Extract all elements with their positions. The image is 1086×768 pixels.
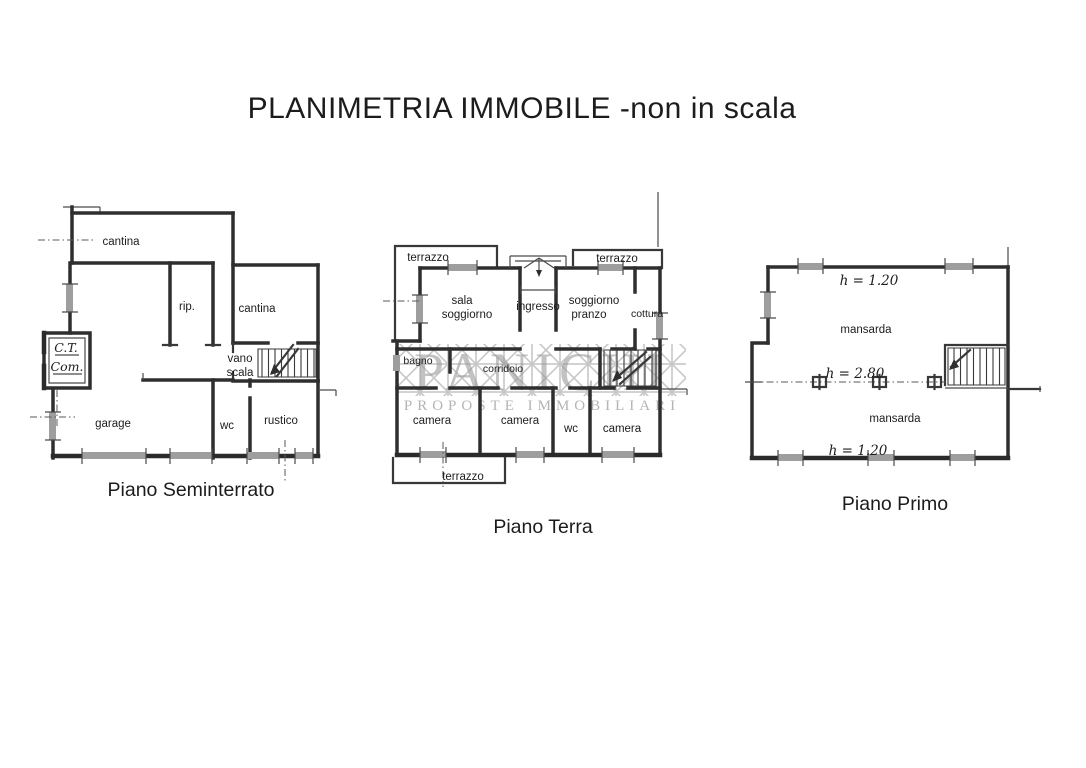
room-label-soggiorno-pranzo1: soggiorno: [569, 295, 620, 307]
room-label-camera2: camera: [501, 415, 540, 427]
room-label-cottura: cottura: [631, 308, 663, 320]
terra-walls: [393, 192, 687, 483]
room-label-wc-terra: wc: [563, 423, 578, 435]
room-label-cantina-top: cantina: [102, 236, 140, 248]
room-label-wc-seminterrato: wc: [219, 420, 234, 432]
room-label-scala: scala: [227, 367, 254, 379]
floor-label-terra: Piano Terra: [493, 516, 593, 538]
room-label-camera1: camera: [413, 415, 452, 427]
height-label-bottom: h = 1.20: [829, 443, 888, 459]
room-label-terrazzo-left: terrazzo: [407, 252, 449, 264]
room-label-corridoio: corridoio: [483, 363, 523, 375]
room-label-mansarda-top: mansarda: [840, 324, 892, 336]
room-label-camera3: camera: [603, 423, 642, 435]
room-label-cantina-right: cantina: [238, 303, 276, 315]
room-label-vano: vano: [228, 353, 253, 365]
primo-stairs: [945, 345, 1008, 388]
plan-seminterrato: cantina rip. cantina C.T. Com. vano scal…: [30, 207, 336, 501]
room-label-terrazzo-bottom: terrazzo: [442, 471, 484, 483]
floorplan-drawing: PANICHI PROPOSTE IMMOBILIARI PLANIMETRIA…: [0, 0, 1086, 768]
floor-label-primo: Piano Primo: [842, 493, 948, 515]
room-label-rip: rip.: [179, 301, 195, 313]
room-label-ct: C.T.: [54, 340, 78, 355]
watermark: PANICHI PROPOSTE IMMOBILIARI: [398, 342, 686, 414]
room-label-bagno: bagno: [403, 355, 432, 367]
room-label-terrazzo-right: terrazzo: [596, 253, 638, 265]
watermark-tagline: PROPOSTE IMMOBILIARI: [404, 398, 680, 414]
room-label-ingresso: ingresso: [516, 301, 559, 313]
room-label-sala: sala: [451, 295, 473, 307]
room-label-sala-soggiorno: soggiorno: [442, 309, 493, 321]
height-label-middle: h = 2.80: [826, 366, 885, 382]
height-label-top: h = 1.20: [840, 273, 899, 289]
floorplan-page: PANICHI PROPOSTE IMMOBILIARI PLANIMETRIA…: [0, 0, 1086, 768]
room-label-mansarda-bottom: mansarda: [869, 413, 921, 425]
watermark-name: PANICHI: [414, 342, 670, 402]
floor-label-seminterrato: Piano Seminterrato: [108, 479, 275, 501]
page-title: PLANIMETRIA IMMOBILE -non in scala: [248, 92, 797, 125]
room-label-rustico: rustico: [264, 415, 298, 427]
room-label-com: Com.: [51, 359, 84, 374]
room-label-soggiorno-pranzo2: pranzo: [571, 309, 606, 321]
seminterrato-stairs: [258, 345, 316, 377]
plan-primo: h = 1.20 mansarda h = 2.80 mansarda h = …: [745, 247, 1040, 515]
room-label-garage: garage: [95, 418, 131, 430]
